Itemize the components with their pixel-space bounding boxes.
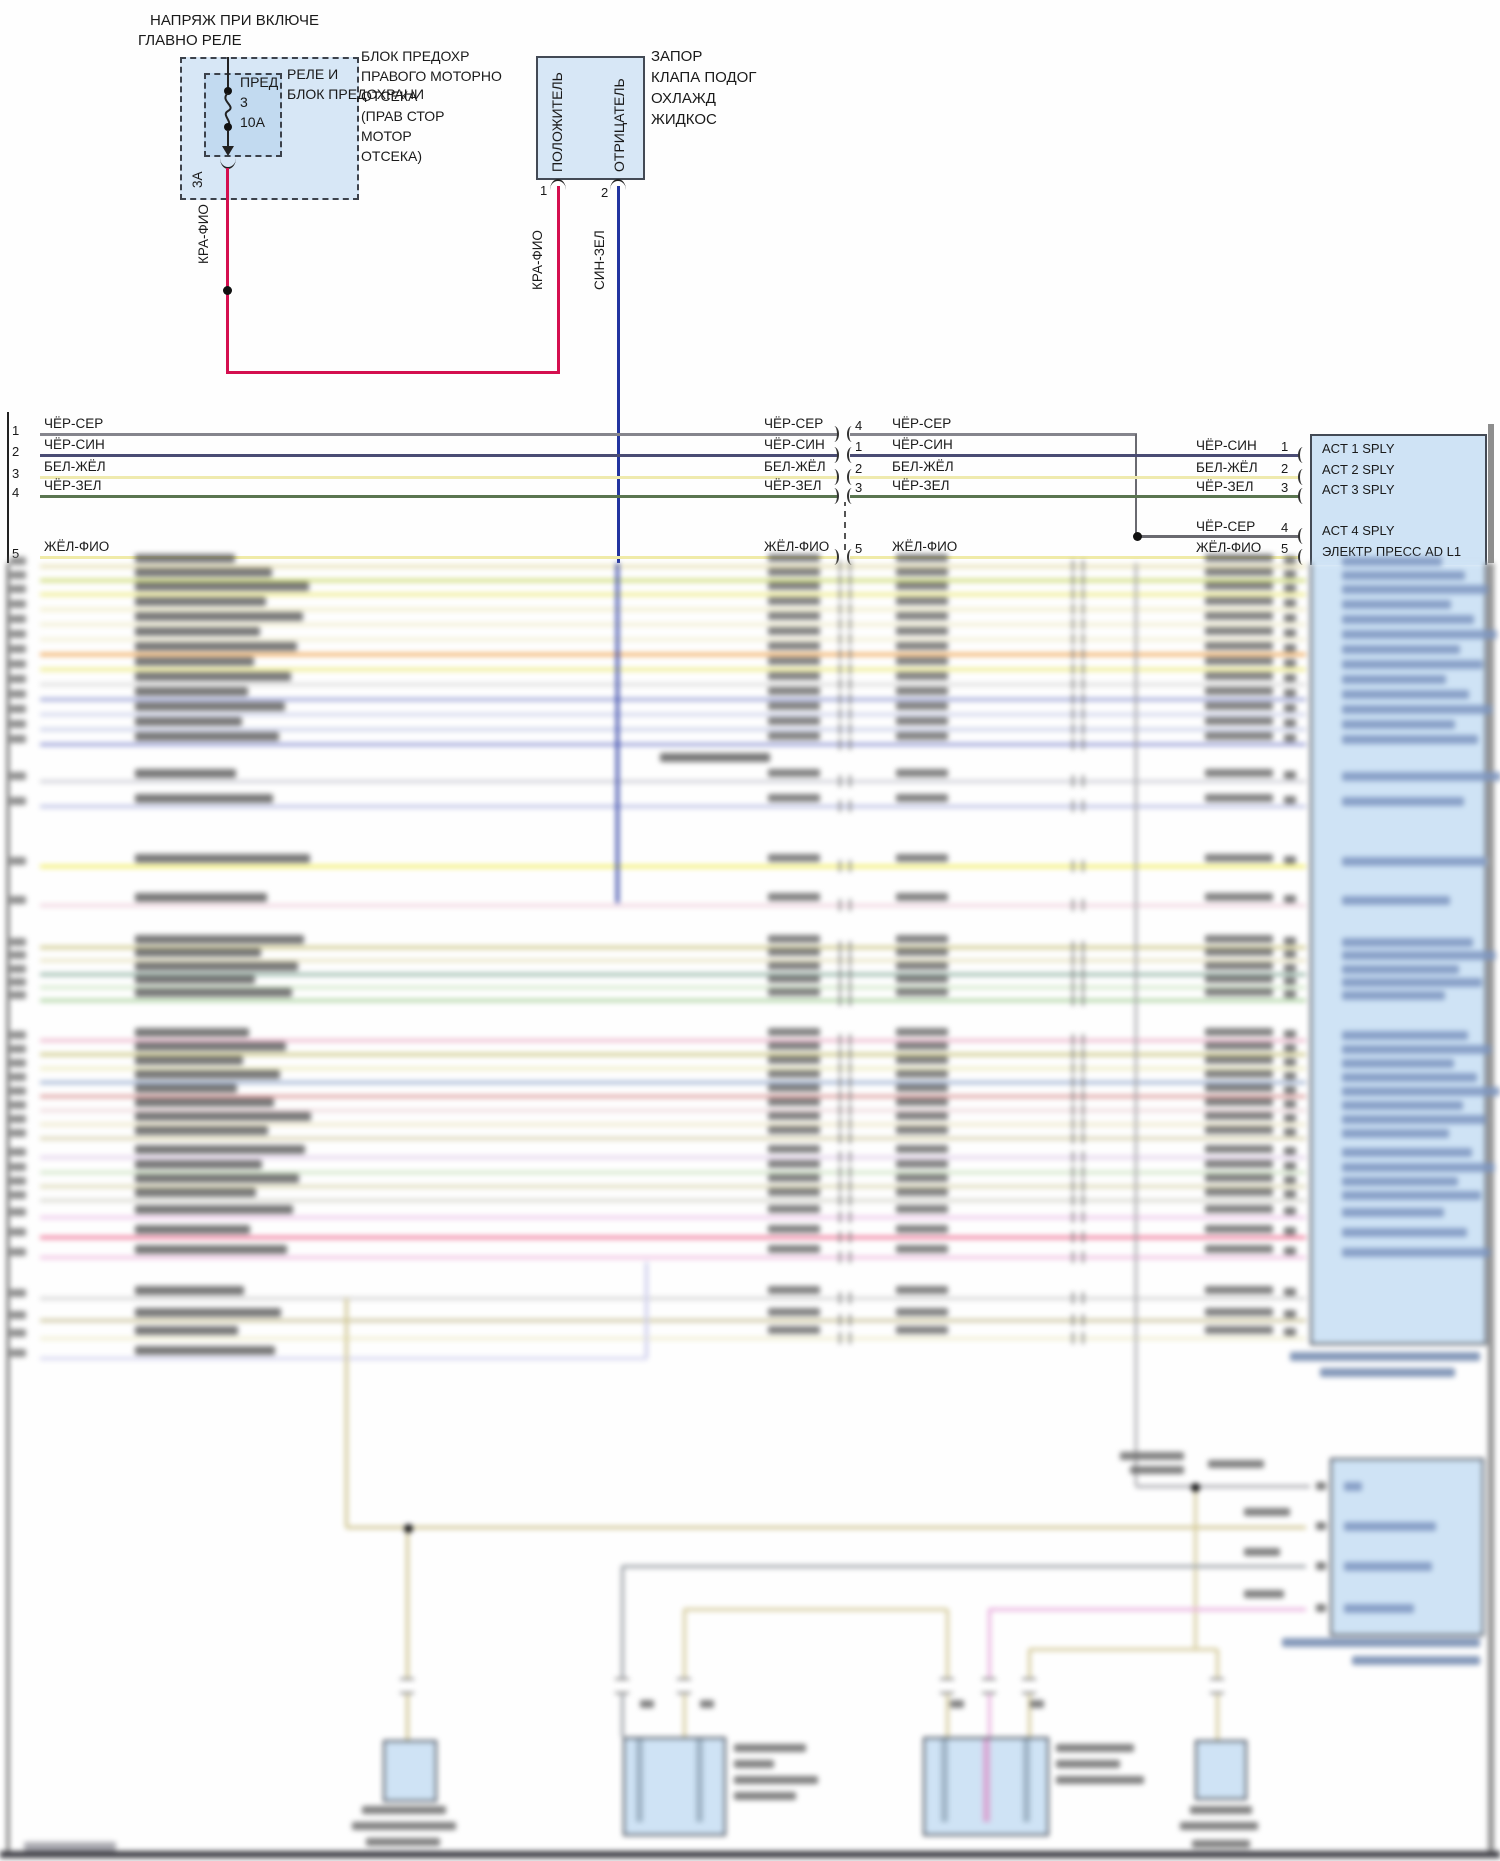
wire-kra-fio-vertical	[226, 168, 229, 374]
connector-break-icon	[849, 603, 851, 615]
blurred-text	[1205, 1188, 1273, 1196]
valve-name-line3: ОХЛАЖД	[651, 90, 716, 107]
blurred-lower-region	[0, 563, 1500, 1861]
wire-kra-fio-up	[557, 186, 560, 374]
connector-break-icon	[1072, 1048, 1074, 1060]
blurred-text	[135, 1225, 250, 1234]
wire-vertical	[616, 563, 619, 903]
bus-right-pin-num: 3	[1281, 479, 1288, 496]
connector-break-icon	[839, 1314, 841, 1326]
blurred-text	[135, 597, 266, 606]
wire-vertical	[1135, 563, 1138, 1486]
blurred-text	[135, 1070, 280, 1079]
blurred-text	[135, 794, 273, 803]
connector-break-icon	[839, 693, 841, 705]
blurred-text	[896, 935, 948, 943]
blurred-text	[1342, 720, 1455, 729]
connector-break-icon	[849, 981, 851, 993]
wire-in-box	[1023, 1739, 1030, 1822]
blurred-text	[768, 1084, 820, 1092]
blurred-text	[896, 1286, 948, 1294]
inline-connector-dashed-line	[844, 500, 846, 550]
connector-break-icon	[839, 723, 841, 735]
blurred-text	[1205, 1056, 1273, 1064]
connector-break-icon	[839, 1194, 841, 1206]
blurred-text	[1342, 1031, 1468, 1040]
blurred-text	[10, 630, 26, 638]
blurred-text	[768, 948, 820, 956]
connector-break-icon	[849, 1090, 851, 1102]
blurred-text	[1284, 629, 1296, 637]
connector-break-icon	[1082, 1048, 1084, 1060]
blurred-text	[1284, 1162, 1296, 1170]
blurred-text	[135, 1042, 286, 1051]
fusebox-label-2: ПРАВОГО МОТОРНО	[361, 68, 502, 85]
blurred-text	[135, 672, 291, 681]
blurred-text	[1342, 1148, 1472, 1157]
connector-break-icon	[1072, 678, 1074, 690]
relay-label-line1: РЕЛЕ И	[287, 66, 338, 83]
blurred-text	[1342, 690, 1469, 699]
device-pin3-label: ACT 3 SPLY	[1322, 481, 1395, 498]
connector-break-icon	[849, 1062, 851, 1074]
connector-break-icon	[849, 954, 851, 966]
blurred-text	[10, 1311, 26, 1319]
bus-wire-label-mid-left: ЧЁР-ЗЕЛ	[764, 477, 822, 494]
connector-break-icon	[1072, 899, 1074, 911]
blurred-text	[135, 582, 309, 591]
connector-break-icon	[1082, 1090, 1084, 1102]
junction-dot	[1133, 532, 1142, 541]
blurred-text	[1342, 1177, 1458, 1186]
blurred-text	[10, 1087, 26, 1095]
connector-break-icon	[677, 1692, 691, 1694]
connector-break-icon	[1082, 1251, 1084, 1263]
blurred-text	[768, 717, 820, 725]
connector-break-icon	[849, 618, 851, 630]
blurred-text	[1205, 627, 1273, 635]
wire-vertical	[645, 1262, 648, 1358]
blurred-text	[768, 1326, 820, 1334]
blurred-text	[1205, 854, 1273, 862]
wire-gap	[983, 1679, 995, 1693]
connector-break-icon	[829, 426, 839, 442]
blurred-text	[1284, 1044, 1296, 1052]
blurred-text	[1342, 1045, 1491, 1054]
blurred-text	[1205, 1098, 1273, 1106]
junction-dot	[404, 1524, 413, 1533]
blurred-text	[1284, 659, 1296, 667]
connector-break-icon	[615, 1692, 629, 1694]
blurred-text	[1205, 975, 1273, 983]
blurred-text	[135, 988, 292, 997]
connector-break-icon	[1072, 1231, 1074, 1243]
bus-left-pin-num: 2	[12, 443, 19, 460]
wire-vertical	[1216, 1649, 1219, 1740]
connector-break-icon	[1082, 994, 1084, 1006]
blurred-text	[135, 1056, 243, 1065]
blurred-text	[10, 1129, 26, 1137]
connector-break-icon	[849, 1048, 851, 1060]
wire-horizontal	[40, 805, 1306, 808]
bus-wire-label-left: ЧЁР-СИН	[44, 436, 105, 453]
bus-wire-label-mid-left: ЧЁР-СИН	[764, 436, 825, 453]
blurred-text	[1342, 991, 1445, 1000]
blurred-text	[896, 554, 948, 562]
blurred-text	[10, 991, 26, 999]
bus-wire-label-right: ЧЁР-СЕР	[1196, 518, 1255, 535]
blurred-text	[1342, 938, 1473, 947]
blurred-text	[768, 582, 820, 590]
connector-break-icon	[1082, 775, 1084, 787]
blurred-text	[10, 772, 26, 780]
blurred-text	[10, 1177, 26, 1185]
blurred-text	[10, 797, 26, 805]
connector-break-icon	[839, 1251, 841, 1263]
blurred-text	[135, 1308, 281, 1317]
blurred-text	[1205, 568, 1273, 576]
blurred-text	[768, 1112, 820, 1120]
blurred-text	[768, 554, 820, 562]
connector-break-icon	[1210, 1692, 1224, 1694]
blurred-text	[1342, 735, 1478, 744]
wire-kra-fio-horizontal	[226, 371, 560, 374]
blurred-text	[135, 554, 235, 563]
connector-break-icon	[1082, 1076, 1084, 1088]
connector-break-icon	[839, 738, 841, 750]
connector-break-icon	[839, 800, 841, 812]
connector-break-icon	[839, 1151, 841, 1163]
blurred-text	[1290, 1352, 1480, 1361]
connector-break-icon	[1082, 1166, 1084, 1178]
blurred-text	[1056, 1776, 1144, 1784]
blurred-text	[768, 597, 820, 605]
blurred-text	[1056, 1744, 1134, 1752]
connector-break-icon	[1072, 1251, 1074, 1263]
wiring-diagram-canvas: НАПРЯЖ ПРИ ВКЛЮЧЕ ГЛАВНО РЕЛЕ ПРЕД 3 10А…	[0, 0, 1500, 1861]
blurred-text	[1284, 1227, 1296, 1235]
blurred-text	[896, 769, 948, 777]
blurred-text	[896, 1056, 948, 1064]
blurred-text	[1284, 1207, 1296, 1215]
connector-break-icon	[849, 1211, 851, 1223]
blurred-text	[896, 1042, 948, 1050]
blurred-text	[1130, 1466, 1184, 1474]
blurred-text	[768, 1205, 820, 1213]
blurred-text	[1284, 584, 1296, 592]
blurred-text	[1342, 645, 1460, 654]
page-title-line2: ГЛАВНО РЕЛЕ	[138, 32, 242, 49]
blurred-text	[1342, 585, 1488, 594]
blurred-text	[896, 1160, 948, 1168]
blurred-text	[1342, 660, 1483, 669]
connector-break-icon	[982, 1692, 996, 1694]
blurred-text	[10, 1349, 26, 1357]
valve-name-line4: ЖИДКОС	[651, 111, 717, 128]
blurred-text	[1056, 1760, 1120, 1768]
blurred-text	[1352, 1656, 1480, 1665]
connector-break-icon	[849, 1292, 851, 1304]
blurred-text	[135, 1286, 244, 1295]
blurred-text	[1342, 1073, 1477, 1082]
blurred-text	[768, 1056, 820, 1064]
wire-label-kra-fio-1: КРА-ФИО	[196, 190, 211, 264]
blurred-text	[1284, 977, 1296, 985]
wire-horizontal	[1029, 1648, 1217, 1651]
component-box	[1195, 1740, 1247, 1800]
connector-break-icon	[849, 1034, 851, 1046]
blurred-text	[896, 612, 948, 620]
wire-horizontal	[40, 495, 838, 498]
connector-break-icon	[1072, 1194, 1074, 1206]
blurred-text	[1205, 1205, 1273, 1213]
blurred-text	[10, 1191, 26, 1199]
connector-break-icon	[1082, 560, 1084, 572]
blurred-text	[768, 642, 820, 650]
connector-break-icon	[615, 1678, 629, 1680]
blurred-text	[1284, 1030, 1296, 1038]
blurred-text	[1205, 1084, 1273, 1092]
connector-break-icon	[849, 648, 851, 660]
blurred-text	[1284, 1328, 1296, 1336]
connector-break-icon	[849, 1314, 851, 1326]
bus-wire-label-mid-right: ЖЁЛ-ФИО	[892, 538, 957, 555]
connector-break-icon	[400, 1692, 414, 1694]
blurred-text	[135, 702, 285, 711]
blurred-text	[1342, 615, 1474, 624]
blurred-text	[10, 690, 26, 698]
connector-break-icon	[849, 1151, 851, 1163]
connector-break-icon	[849, 1118, 851, 1130]
valve-pin2-num: 2	[601, 184, 608, 201]
blurred-text	[1205, 1174, 1273, 1182]
wire-gap	[616, 1679, 628, 1693]
blurred-text	[1284, 964, 1296, 972]
bus-mid-pin-num: 4	[855, 417, 862, 434]
connector-break-icon	[1082, 1211, 1084, 1223]
blurred-text	[896, 1245, 948, 1253]
blurred-text	[1284, 599, 1296, 607]
blurred-text	[896, 582, 948, 590]
blurred-text	[10, 645, 26, 653]
wire-horizontal	[40, 743, 1306, 746]
blurred-text	[1284, 1147, 1296, 1155]
blurred-text	[1282, 1638, 1480, 1647]
device-pin1-label: ACT 1 SPLY	[1322, 440, 1395, 457]
connector-break-icon	[849, 1332, 851, 1344]
connector-break-icon	[1072, 618, 1074, 630]
blurred-text	[896, 702, 948, 710]
blurred-text	[135, 1098, 274, 1107]
blurred-text	[1205, 794, 1273, 802]
connector-break-icon	[839, 1076, 841, 1088]
blurred-text	[768, 962, 820, 970]
blurred-text	[135, 1346, 275, 1355]
blurred-text	[768, 1028, 820, 1036]
blurred-text	[135, 1326, 238, 1335]
bottom-frame	[0, 1851, 1500, 1858]
connector-break-icon	[1072, 1132, 1074, 1144]
blurred-text	[10, 600, 26, 608]
blurred-text	[1205, 642, 1273, 650]
connector-break-icon	[839, 560, 841, 572]
blurred-text	[135, 642, 297, 651]
connector-break-icon	[1082, 693, 1084, 705]
blurred-text	[135, 1126, 268, 1135]
connector-break-icon	[839, 648, 841, 660]
blurred-text	[896, 794, 948, 802]
blurred-text	[896, 854, 948, 862]
connector-break-icon	[839, 899, 841, 911]
blurred-text	[1284, 950, 1296, 958]
blurred-text	[896, 568, 948, 576]
wire-vertical	[988, 1609, 991, 1737]
pin-socket-icon	[610, 179, 626, 190]
connector-break-icon	[1072, 708, 1074, 720]
connector-break-icon	[849, 663, 851, 675]
bus-right-pin-num: 4	[1281, 519, 1288, 536]
blurred-text	[1205, 1225, 1273, 1233]
wire-gap	[1023, 1679, 1035, 1693]
blurred-text	[1205, 1308, 1273, 1316]
blurred-text	[10, 1148, 26, 1156]
blurred-text	[1284, 1310, 1296, 1318]
connector-break-icon	[839, 941, 841, 953]
connector-break-icon	[849, 860, 851, 872]
connector-break-icon	[1072, 954, 1074, 966]
blurred-text	[768, 1042, 820, 1050]
connector-break-icon	[839, 574, 841, 586]
blurred-text	[1205, 962, 1273, 970]
blurred-text	[135, 687, 248, 696]
blurred-text	[896, 1070, 948, 1078]
blurred-text	[1342, 630, 1497, 639]
connector-break-icon	[849, 899, 851, 911]
connector-break-icon	[849, 560, 851, 572]
wire-horizontal	[40, 865, 1306, 868]
connector-break-icon	[1082, 663, 1084, 675]
connector-break-icon	[839, 1104, 841, 1116]
blurred-text	[1205, 1028, 1273, 1036]
blurred-text	[896, 732, 948, 740]
blurred-text	[352, 1822, 456, 1830]
blurred-text	[1342, 1115, 1486, 1124]
connector-break-icon	[1072, 1090, 1074, 1102]
connector-break-icon	[839, 1048, 841, 1060]
connector-break-icon	[1022, 1678, 1036, 1680]
left-frame	[7, 412, 9, 563]
blurred-text	[1342, 1087, 1500, 1096]
blurred-text	[1320, 1368, 1455, 1377]
blurred-text	[1284, 1288, 1296, 1296]
blurred-text	[1342, 1191, 1481, 1200]
blurred-text	[1284, 1190, 1296, 1198]
blurred-text	[135, 1145, 305, 1154]
connector-break-icon	[400, 1678, 414, 1680]
bus-mid-pin-num: 3	[855, 479, 862, 496]
blurred-text	[1344, 1562, 1432, 1571]
connector-break-icon	[839, 663, 841, 675]
bus-wire-label-mid-right: БЕЛ-ЖЁЛ	[892, 458, 954, 475]
blurred-text	[1205, 702, 1273, 710]
connector-break-icon	[849, 994, 851, 1006]
connector-break-icon	[1072, 1292, 1074, 1304]
connector-break-icon	[1072, 860, 1074, 872]
blurred-text	[660, 753, 770, 762]
blurred-text	[10, 571, 26, 579]
connector-break-icon	[849, 708, 851, 720]
blurred-text	[1208, 1460, 1264, 1468]
connector-break-icon	[1072, 1062, 1074, 1074]
wire-gap	[678, 1679, 690, 1693]
connector-break-icon	[1082, 1118, 1084, 1130]
blurred-text	[135, 1112, 311, 1121]
connector-break-icon	[1072, 693, 1074, 705]
connector-break-icon	[839, 603, 841, 615]
valve-pin1-num: 1	[540, 182, 547, 199]
wire-horizontal	[40, 1216, 1306, 1219]
blurred-text	[768, 794, 820, 802]
blurred-text	[1284, 1100, 1296, 1108]
connector-break-icon	[1082, 603, 1084, 615]
blurred-text	[135, 1028, 249, 1037]
blurred-text	[1284, 719, 1296, 727]
blurred-text	[896, 672, 948, 680]
connector-break-icon	[1072, 574, 1074, 586]
connector-break-icon	[1082, 648, 1084, 660]
blurred-text	[10, 965, 26, 973]
connector-break-icon	[1082, 738, 1084, 750]
blurred-text	[640, 1700, 654, 1708]
blurred-text	[1205, 612, 1273, 620]
wire-gap	[941, 1679, 953, 1693]
right-frame	[1488, 424, 1494, 563]
fusebox-label-4: (ПРАВ СТОР	[361, 108, 445, 125]
wire-horizontal	[40, 698, 1306, 701]
connector-break-icon	[1082, 723, 1084, 735]
blurred-text	[1342, 797, 1464, 806]
connector-break-icon	[839, 678, 841, 690]
connector-break-icon	[839, 1166, 841, 1178]
connector-break-icon	[849, 738, 851, 750]
connector-break-icon	[1082, 1062, 1084, 1074]
connector-break-icon	[849, 775, 851, 787]
blurred-text	[768, 1308, 820, 1316]
blurred-text	[10, 1101, 26, 1109]
blurred-text	[896, 657, 948, 665]
blurred-text	[1316, 1522, 1326, 1530]
blurred-text	[1205, 1070, 1273, 1078]
connector-break-icon	[1082, 708, 1084, 720]
blurred-text	[1205, 935, 1273, 943]
connector-break-icon	[1072, 1118, 1074, 1130]
fusebox-label-6: ОТСЕКА)	[361, 148, 422, 165]
blurred-text	[1342, 705, 1492, 714]
bus-wire-label-right: ЧЁР-СИН	[1196, 437, 1257, 454]
blurred-text	[896, 948, 948, 956]
wire-in-box	[983, 1739, 990, 1822]
connector-break-icon	[1072, 738, 1074, 750]
blurred-text	[768, 893, 820, 901]
blurred-text	[10, 585, 26, 593]
wire-horizontal	[40, 683, 1306, 686]
blurred-text	[1284, 614, 1296, 622]
blurred-text	[10, 660, 26, 668]
blurred-text	[734, 1760, 774, 1768]
connector-break-icon	[1082, 860, 1084, 872]
connector-break-icon	[839, 1292, 841, 1304]
blurred-text	[768, 1286, 820, 1294]
